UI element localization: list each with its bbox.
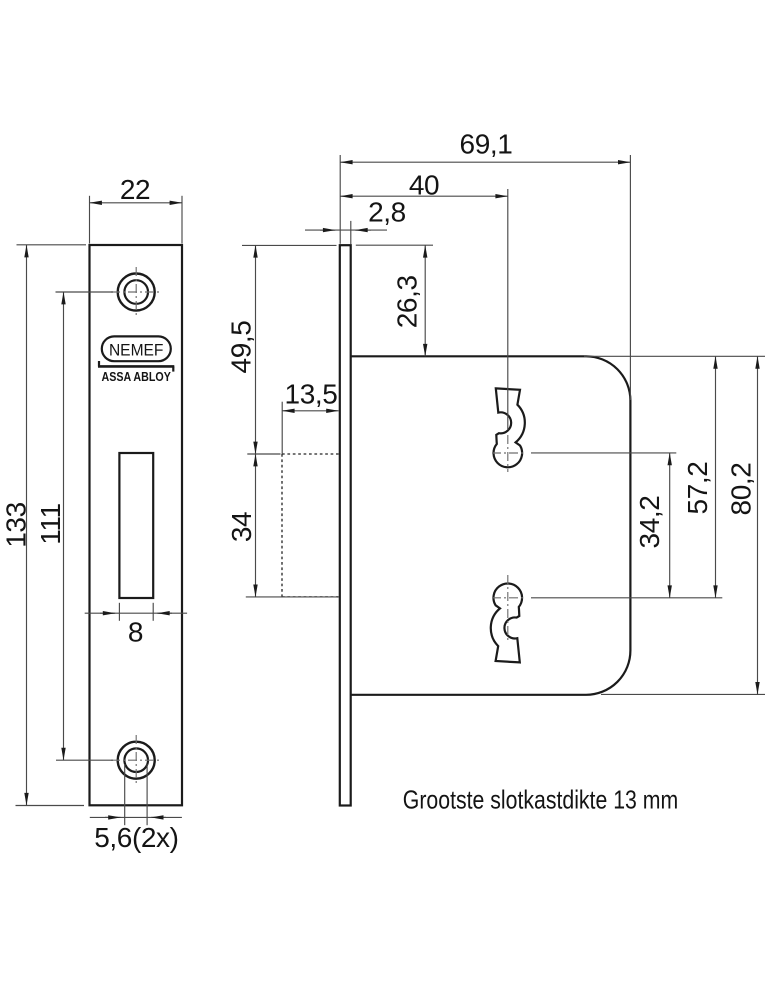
svg-text:2,8: 2,8 [368,197,406,228]
svg-text:8: 8 [128,616,143,647]
svg-text:Grootste slotkastdikte 13 mm: Grootste slotkastdikte 13 mm [403,785,678,815]
svg-text:57,2: 57,2 [682,462,713,515]
svg-text:34: 34 [226,512,257,542]
svg-text:13,5: 13,5 [285,379,338,410]
svg-text:5,6(2x): 5,6(2x) [94,822,178,853]
svg-text:22: 22 [120,174,150,205]
svg-text:80,2: 80,2 [726,463,757,516]
svg-text:34,2: 34,2 [634,496,665,549]
svg-text:69,1: 69,1 [460,129,513,160]
svg-text:133: 133 [0,502,31,548]
svg-text:49,5: 49,5 [226,321,257,374]
svg-text:ASSA ABLOY: ASSA ABLOY [102,369,172,384]
svg-text:40: 40 [409,170,439,201]
svg-text:111: 111 [35,503,66,544]
svg-text:26,3: 26,3 [391,275,422,328]
svg-text:NEMEF: NEMEF [109,341,164,360]
